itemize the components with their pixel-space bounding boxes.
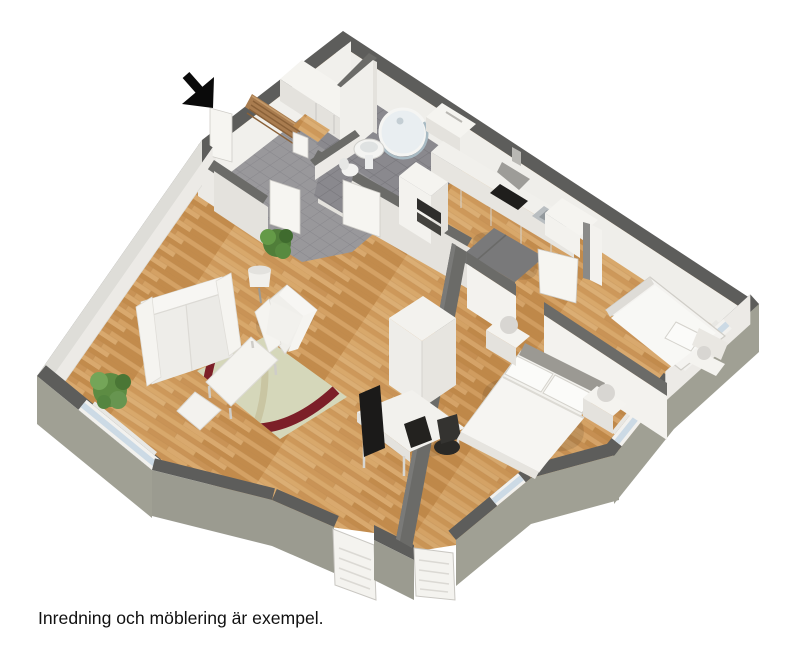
svg-text:Inredning och möblering är exe: Inredning och möblering är exempel. <box>38 608 324 628</box>
